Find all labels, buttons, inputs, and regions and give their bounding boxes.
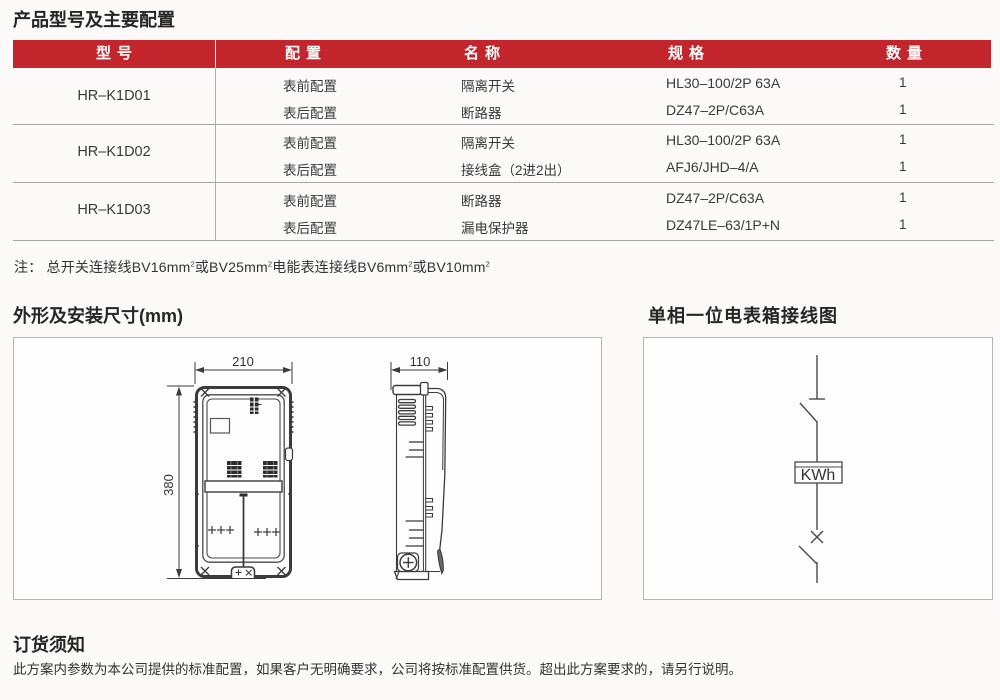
svg-text:210: 210 [232,354,254,369]
svg-text:110: 110 [410,354,431,369]
svg-text:KWh: KWh [801,467,836,484]
svg-text:380: 380 [161,474,176,496]
